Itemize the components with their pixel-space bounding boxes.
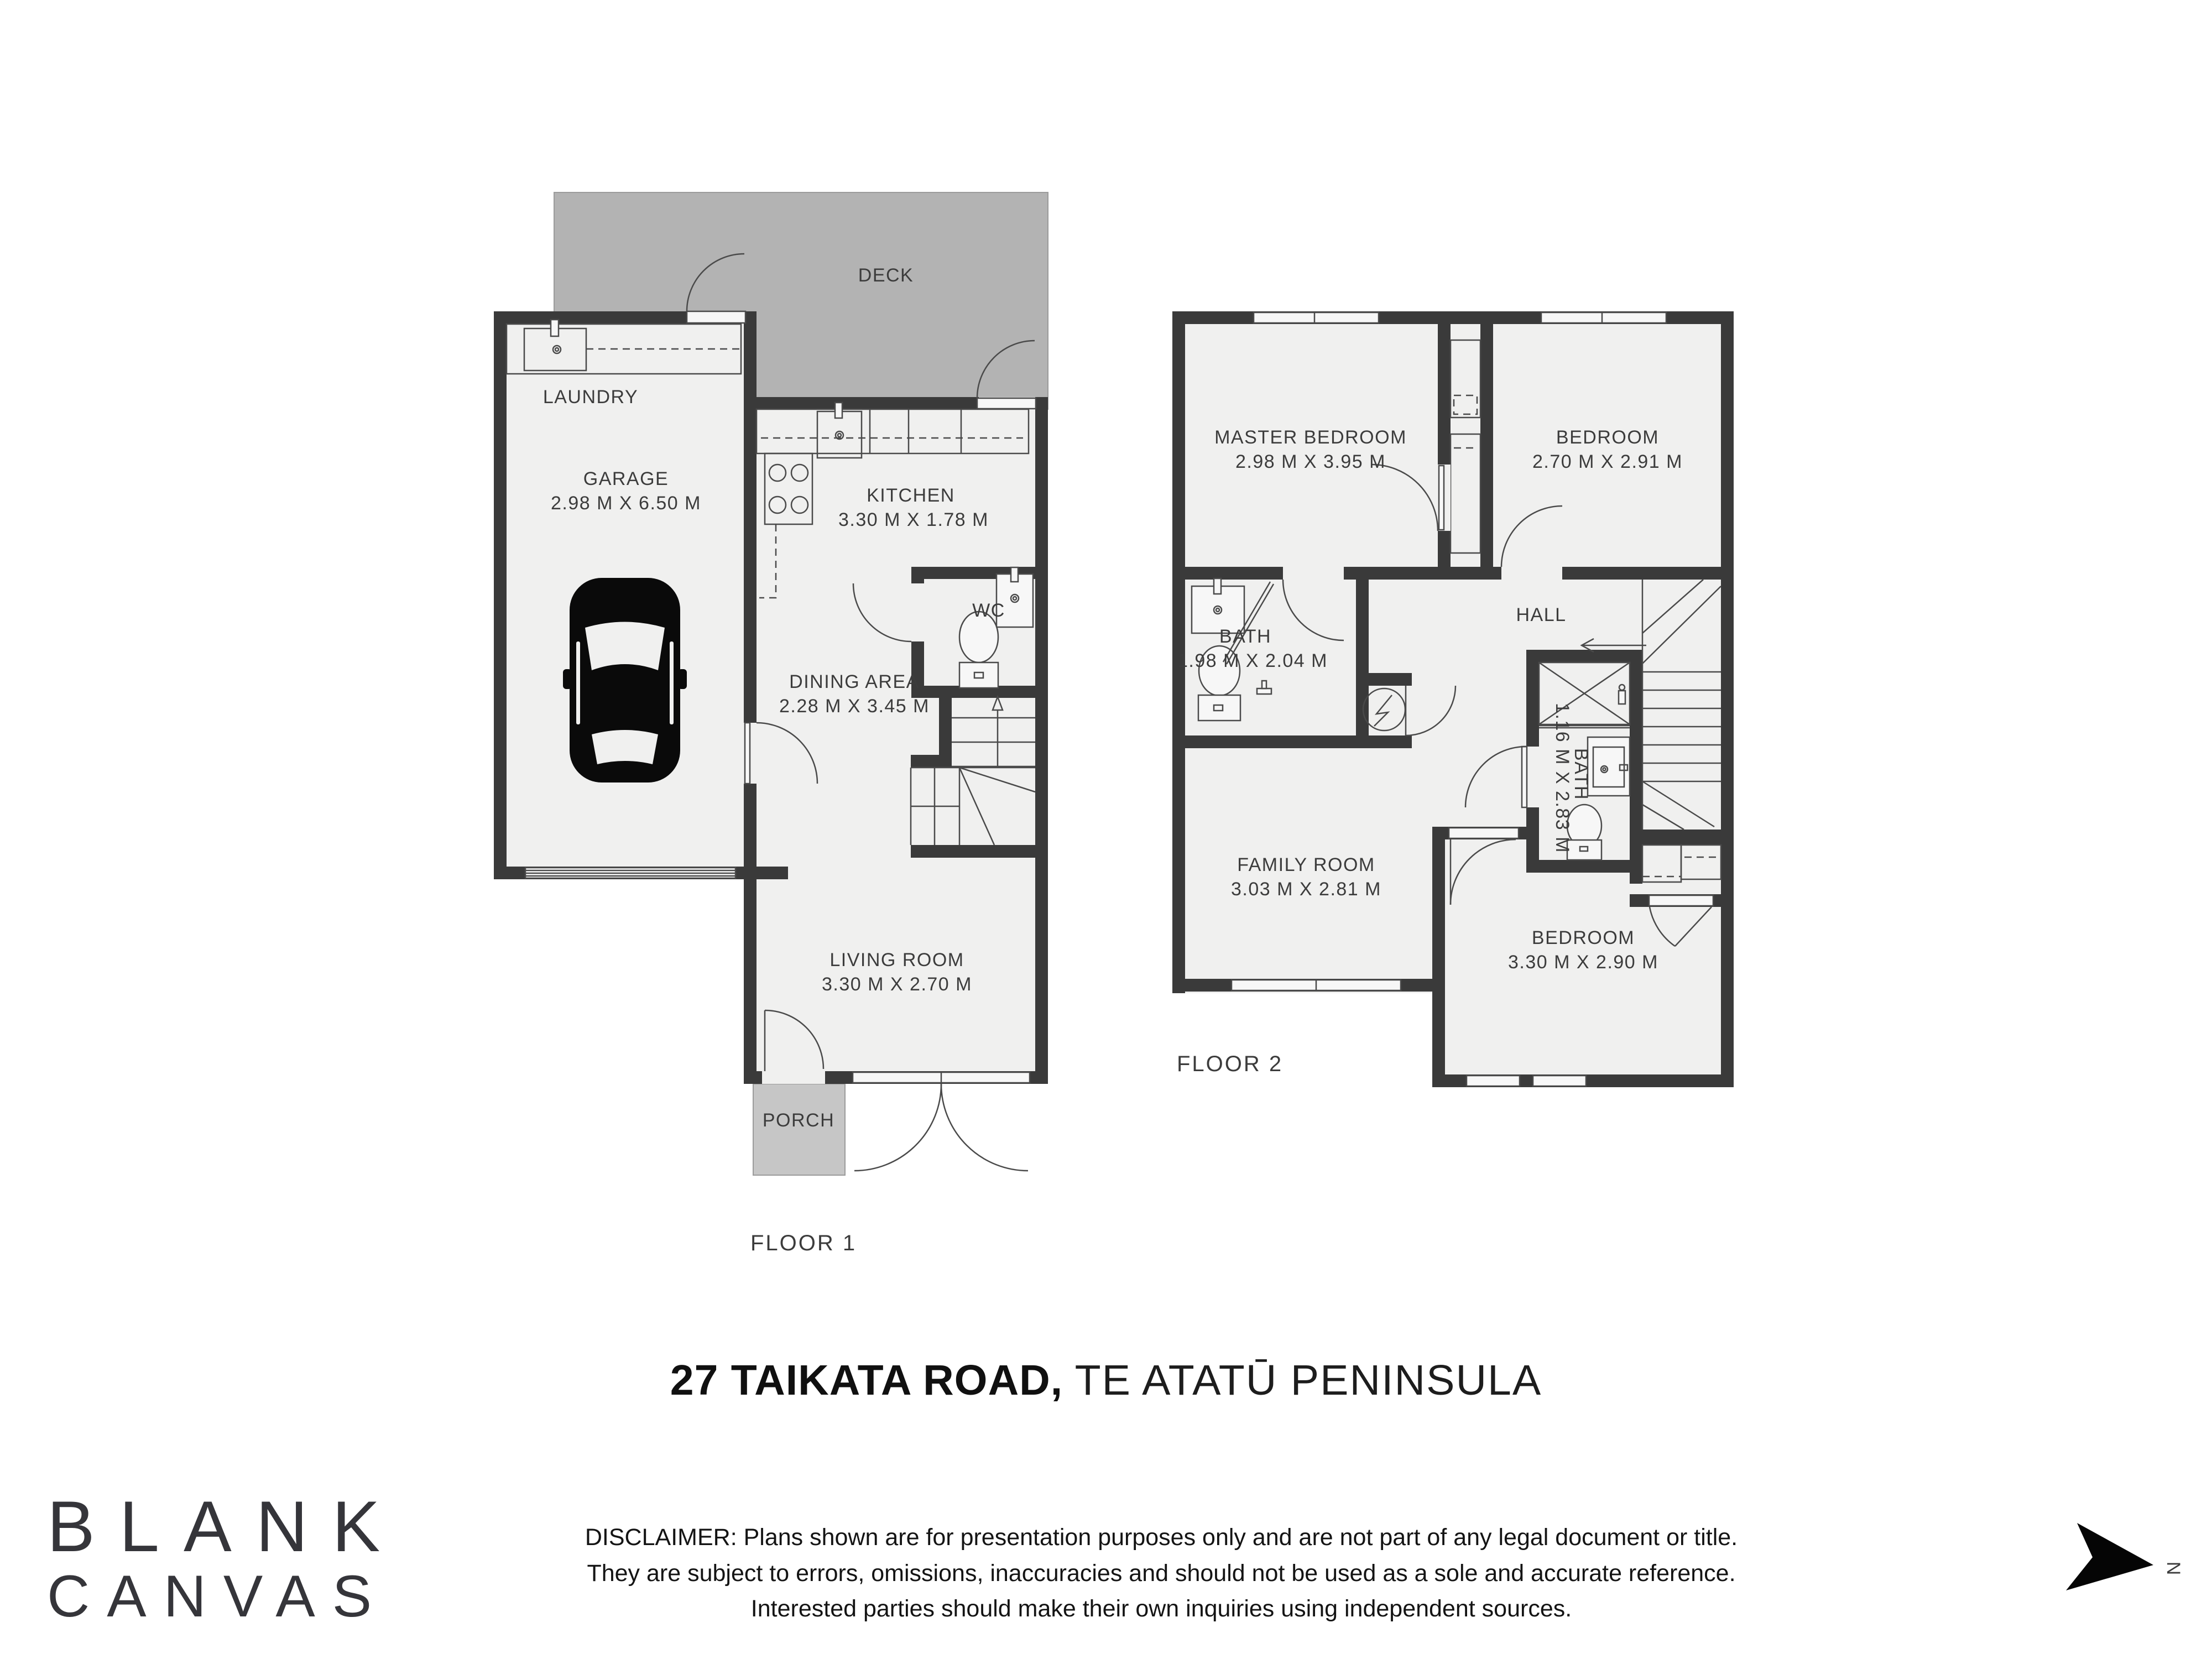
page-title: 27 TAIKATA ROAD, TE ATATŪ PENINSULA [0,1356,2212,1405]
disclaimer-text: DISCLAIMER: Plans shown are for presenta… [387,1520,1936,1627]
bedroom-bottom-label: BEDROOM [1532,927,1635,948]
master-bedroom-dims: 2.98 M X 3.95 M [1235,451,1386,472]
hall-label: HALL [1516,604,1566,625]
porch-label: PORCH [763,1110,834,1131]
disclaimer-line3: Interested parties should make their own… [387,1591,1936,1627]
garage-door [525,868,735,878]
french-door-sill [853,1072,1030,1083]
kitchen-label: KITCHEN [867,485,955,506]
shower-head-icon [1619,691,1625,704]
bath-small-label: BATH [1571,748,1592,800]
north-arrow-icon [2066,1523,2153,1590]
disclaimer-line2: They are subject to errors, omissions, i… [387,1556,1936,1592]
north-arrow: N [2060,1517,2193,1617]
french-doors [854,1084,1028,1171]
floor1-tag: FLOOR 1 [750,1231,857,1256]
wc-door-opening [911,583,924,641]
floor2-tag: FLOOR 2 [1177,1052,1283,1077]
logo-line2: CANVAS [47,1565,404,1627]
kitchen-dims: 3.30 M X 1.78 M [838,509,989,530]
bath-main-label: BATH [1219,626,1271,647]
garage-deck-door-sill [687,311,745,323]
bath-small-dims: 1.16 M X 2.83 M [1552,703,1573,853]
bath-main-tap-icon [1257,688,1271,694]
wc-label: WC [972,600,1005,621]
north-label: N [2163,1562,2184,1575]
laundry-label: LAUNDRY [543,387,638,408]
floorplan-page: DECK LAUNDRY GARAGE 2.98 M X 6.50 M KITC… [0,0,2212,1659]
blank-canvas-logo: BLANK CANVAS [47,1488,404,1627]
bedroom-top-dims: 2.70 M X 2.91 M [1532,451,1683,472]
bedroom-bottom-dims: 3.30 M X 2.90 M [1508,952,1658,973]
floor1-plan: DECK LAUNDRY GARAGE 2.98 M X 6.50 M KITC… [492,188,1051,1178]
garage-dims: 2.98 M X 6.50 M [551,493,701,514]
address-street: 27 TAIKATA ROAD, [670,1357,1063,1404]
garage-label: GARAGE [583,468,669,489]
dining-label: DINING AREA [789,671,920,692]
family-room-label: FAMILY ROOM [1237,854,1375,875]
disclaimer-line1: DISCLAIMER: Plans shown are for presenta… [387,1520,1936,1556]
logo-line1: BLANK [47,1488,404,1565]
floor2-plan: MASTER BEDROOM 2.98 M X 3.95 M BEDROOM 2… [1170,307,1736,1092]
deck-label: DECK [858,265,914,286]
living-dims: 3.30 M X 2.70 M [822,974,972,995]
car-icon [563,578,687,782]
living-label: LIVING ROOM [830,950,964,971]
family-room-dims: 3.03 M X 2.81 M [1231,879,1381,900]
kitchen-deck-door-sill [977,398,1036,409]
kitchen-tap-icon [835,403,842,418]
dining-dims: 2.28 M X 3.45 M [779,696,930,717]
master-bedroom-label: MASTER BEDROOM [1214,427,1407,448]
bath-main-dims: 1.98 M X 2.04 M [1177,650,1328,671]
address-suburb: TE ATATŪ PENINSULA [1075,1357,1542,1404]
bedroom-top-label: BEDROOM [1556,427,1659,448]
laundry-tap-icon [551,320,559,336]
front-door-opening [762,1071,825,1084]
